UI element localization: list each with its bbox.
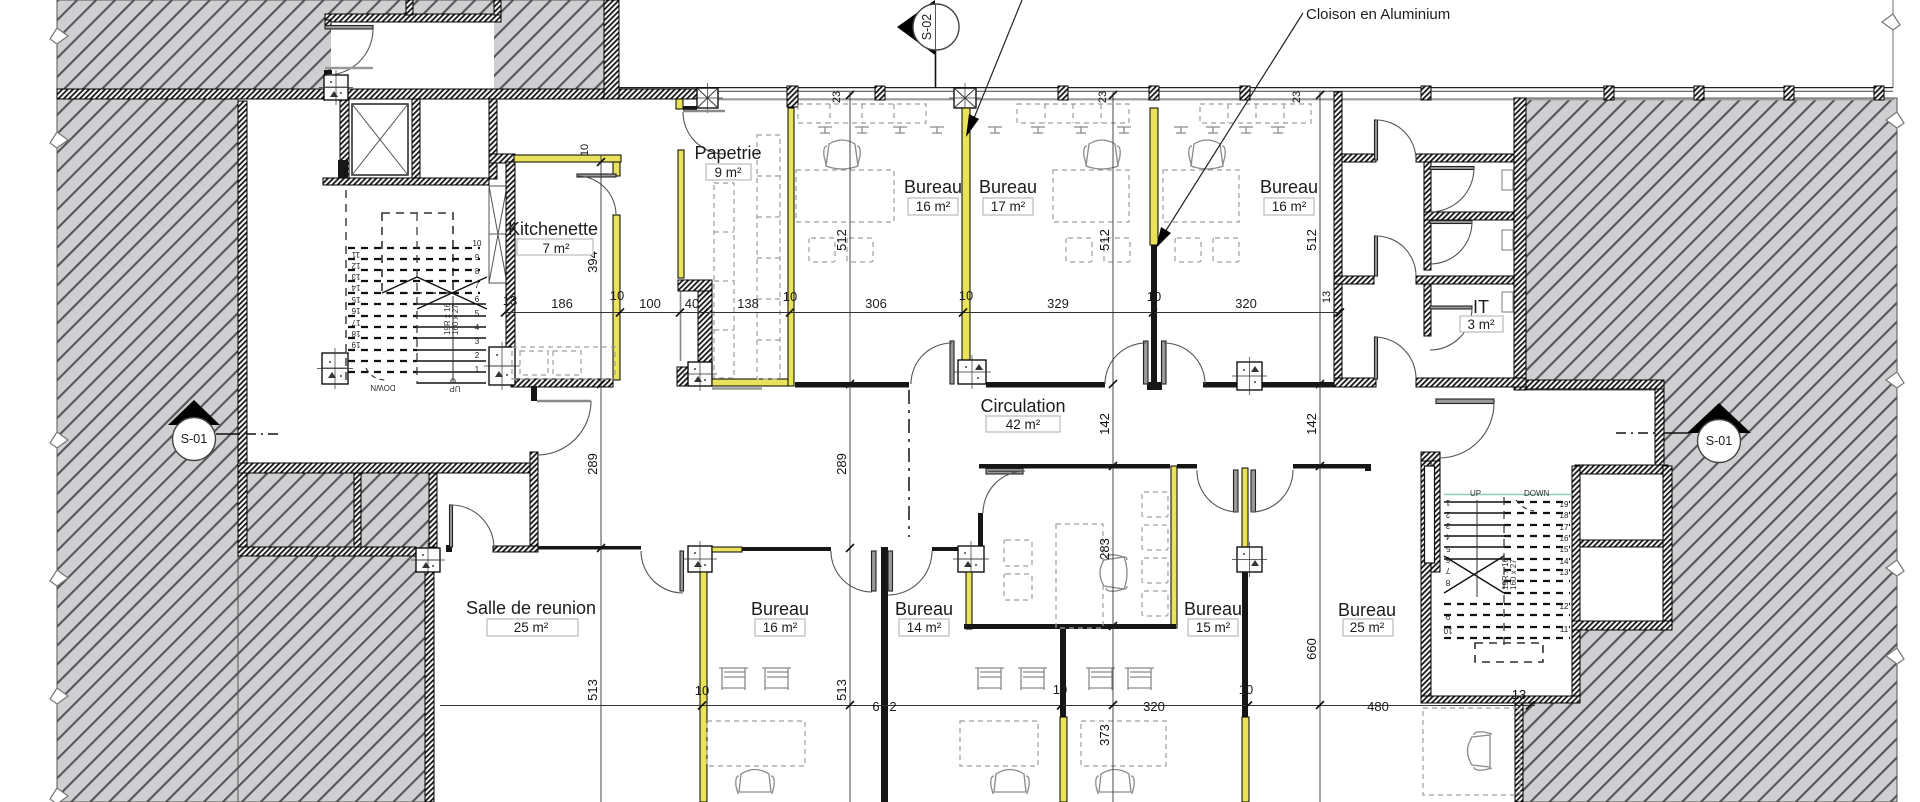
svg-text:660: 660: [1304, 638, 1319, 660]
svg-text:Bureau: Bureau: [904, 177, 962, 197]
svg-text:3: 3: [1445, 521, 1450, 530]
svg-text:18: 18: [351, 329, 360, 338]
svg-text:329: 329: [1047, 296, 1069, 311]
svg-text:14: 14: [351, 283, 360, 292]
svg-text:16 m²: 16 m²: [1272, 199, 1307, 214]
svg-text:25 m²: 25 m²: [514, 620, 549, 635]
svg-text:513: 513: [585, 679, 600, 701]
svg-text:10: 10: [1147, 289, 1161, 304]
svg-text:IT: IT: [1473, 297, 1489, 317]
svg-text:2: 2: [1445, 510, 1450, 519]
svg-text:9: 9: [1445, 612, 1450, 621]
svg-text:DOWN: DOWN: [1524, 489, 1550, 498]
svg-text:4: 4: [1445, 532, 1450, 541]
svg-text:9 m²: 9 m²: [715, 165, 743, 180]
svg-text:14: 14: [1560, 557, 1569, 566]
svg-text:3 m²: 3 m²: [1468, 317, 1496, 332]
svg-text:Bureau: Bureau: [1338, 600, 1396, 620]
svg-text:Kitchenette: Kitchenette: [508, 219, 598, 239]
svg-text:42 m²: 42 m²: [1006, 417, 1041, 432]
svg-text:UP: UP: [449, 384, 460, 393]
svg-text:289: 289: [834, 453, 849, 475]
svg-text:13: 13: [1321, 291, 1333, 303]
svg-text:13: 13: [503, 293, 517, 308]
svg-text:25 m²: 25 m²: [1350, 620, 1385, 635]
svg-text:142: 142: [1097, 413, 1112, 435]
svg-text:10: 10: [473, 239, 482, 248]
svg-text:8: 8: [475, 267, 480, 276]
svg-text:11: 11: [1560, 625, 1569, 634]
svg-text:142: 142: [1304, 413, 1319, 435]
svg-text:512: 512: [1097, 229, 1112, 251]
svg-text:6: 6: [872, 699, 879, 714]
svg-text:Papetrie: Papetrie: [694, 143, 761, 163]
svg-text:S-01: S-01: [181, 432, 207, 446]
svg-text:Circulation: Circulation: [980, 396, 1065, 416]
svg-text:7: 7: [475, 281, 480, 290]
svg-text:12: 12: [351, 261, 360, 270]
svg-text:2: 2: [889, 699, 896, 714]
svg-text:16: 16: [351, 306, 360, 315]
svg-text:138: 138: [737, 296, 759, 311]
svg-text:Bureau: Bureau: [1260, 177, 1318, 197]
svg-text:15 m²: 15 m²: [1196, 620, 1231, 635]
svg-text:283: 283: [1097, 538, 1112, 560]
svg-text:160 x 27: 160 x 27: [451, 304, 460, 335]
svg-text:7 m²: 7 m²: [543, 241, 571, 256]
svg-text:5: 5: [475, 309, 480, 318]
svg-text:6: 6: [1445, 555, 1450, 564]
svg-text:13: 13: [1560, 568, 1569, 577]
svg-text:6: 6: [475, 295, 480, 304]
svg-text:4: 4: [475, 323, 480, 332]
svg-text:100: 100: [639, 296, 661, 311]
svg-text:S-02: S-02: [920, 14, 934, 40]
svg-text:289: 289: [585, 453, 600, 475]
svg-text:12: 12: [1560, 602, 1569, 611]
svg-text:18: 18: [1560, 511, 1569, 520]
svg-text:23: 23: [831, 91, 843, 103]
svg-text:10: 10: [783, 289, 797, 304]
svg-text:306: 306: [865, 296, 887, 311]
svg-text:10: 10: [1443, 626, 1452, 635]
svg-text:17 m²: 17 m²: [991, 199, 1026, 214]
svg-text:Bureau: Bureau: [895, 599, 953, 619]
svg-text:Bureau: Bureau: [979, 177, 1037, 197]
svg-text:10: 10: [959, 288, 973, 303]
svg-text:512: 512: [834, 229, 849, 251]
svg-text:10: 10: [610, 288, 624, 303]
svg-text:Bureau: Bureau: [751, 599, 809, 619]
svg-text:DOWN: DOWN: [370, 383, 396, 392]
svg-text:23: 23: [1291, 91, 1303, 103]
svg-text:513: 513: [834, 679, 849, 701]
svg-text:40: 40: [685, 296, 699, 311]
svg-text:186: 186: [551, 296, 573, 311]
svg-text:5: 5: [1445, 544, 1450, 553]
svg-text:15: 15: [351, 295, 360, 304]
svg-text:373: 373: [1097, 724, 1112, 746]
svg-text:3: 3: [475, 337, 480, 346]
svg-text:S-01: S-01: [1706, 434, 1732, 448]
svg-text:512: 512: [1304, 229, 1319, 251]
svg-text:320: 320: [1235, 296, 1257, 311]
svg-text:1: 1: [475, 365, 480, 374]
svg-text:10: 10: [579, 144, 591, 156]
svg-text:UP: UP: [1470, 489, 1481, 498]
svg-text:480: 480: [1367, 699, 1389, 714]
svg-text:160 x 27: 160 x 27: [1509, 559, 1518, 590]
svg-text:Salle de reunion: Salle de reunion: [466, 598, 596, 618]
svg-text:320: 320: [1143, 699, 1165, 714]
svg-text:2: 2: [475, 351, 480, 360]
svg-text:8: 8: [1445, 578, 1450, 587]
svg-text:19: 19: [1560, 500, 1569, 509]
svg-text:Cloison en Aluminium: Cloison en Aluminium: [1306, 6, 1450, 23]
svg-text:7: 7: [1445, 566, 1450, 575]
svg-text:10: 10: [695, 683, 709, 698]
svg-text:1: 1: [1445, 498, 1450, 507]
svg-text:Bureau: Bureau: [1184, 599, 1242, 619]
svg-text:17: 17: [1560, 523, 1569, 532]
svg-text:19: 19: [351, 340, 360, 349]
svg-text:15: 15: [1560, 545, 1569, 554]
svg-text:10: 10: [1053, 682, 1067, 697]
svg-text:9: 9: [475, 253, 480, 262]
svg-text:23: 23: [1097, 91, 1109, 103]
svg-text:10: 10: [1239, 682, 1253, 697]
svg-text:13: 13: [1512, 687, 1526, 702]
svg-text:13: 13: [351, 272, 360, 281]
svg-text:11: 11: [351, 250, 360, 259]
svg-text:16 m²: 16 m²: [763, 620, 798, 635]
svg-text:16: 16: [1560, 534, 1569, 543]
svg-text:14 m²: 14 m²: [907, 620, 942, 635]
svg-text:16 m²: 16 m²: [916, 199, 951, 214]
svg-text:17: 17: [351, 318, 360, 327]
